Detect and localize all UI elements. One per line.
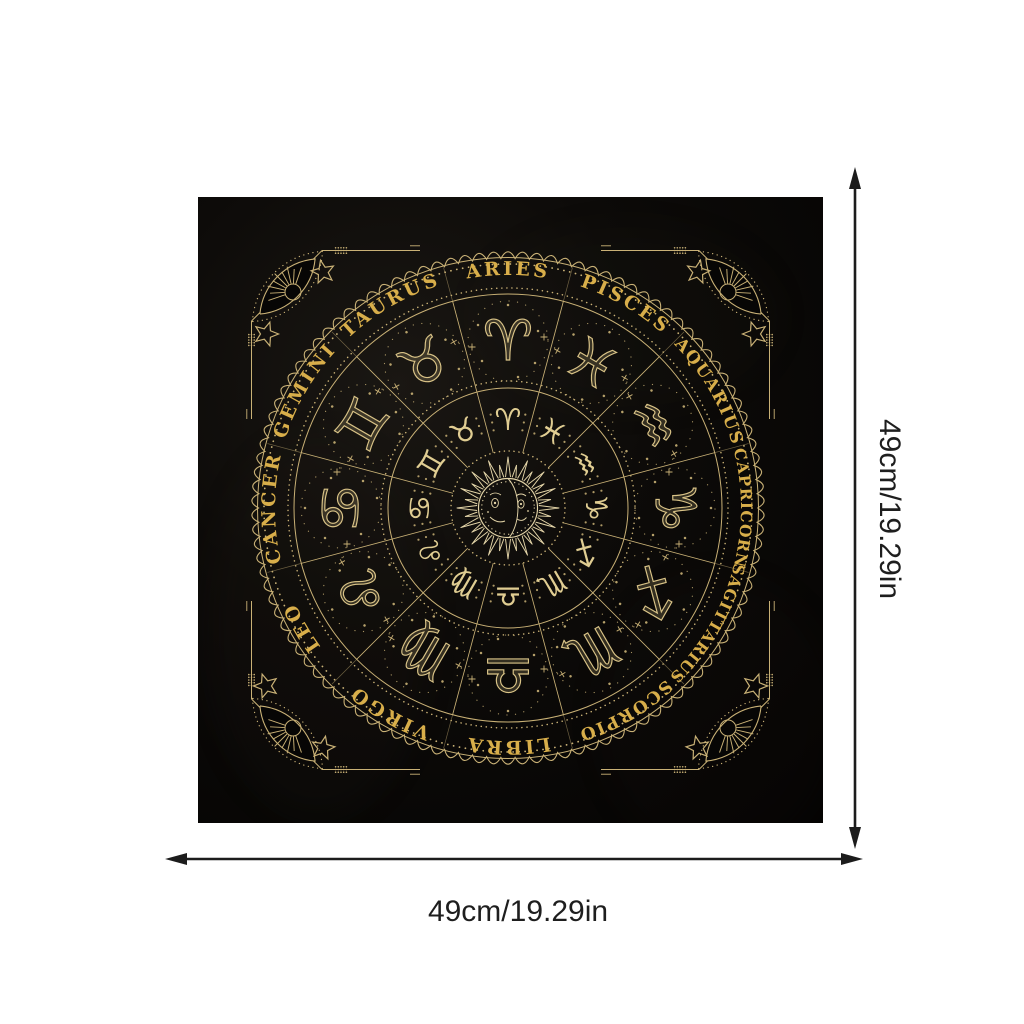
width-dimension-label: 49cm/19.29in [368,892,668,932]
svg-text:♋: ♋ [309,483,374,533]
zodiac-altar-cloth: ARIES♈♈PISCES♓♓AQUARIUS♒♒CAPRICORN♑♑SAGI… [198,197,823,823]
zodiac-glyph-capricorn: ♑ [578,495,613,522]
product-image-canvas: ARIES♈♈PISCES♓♓AQUARIUS♒♒CAPRICORN♑♑SAGI… [0,0,1024,1024]
height-dimension-label: 49cm/19.29in [869,369,909,649]
zodiac-glyph-libra: ♎ [495,578,522,613]
arrow-left-icon [165,853,187,865]
width-dimension-arrow [162,846,866,872]
svg-text:♑: ♑ [642,483,707,533]
zodiac-name-aries: ARIES [463,258,551,284]
zodiac-name-libra: LIBRA [464,732,552,758]
height-dimension-arrow [844,164,868,852]
arrow-up-icon [849,167,861,189]
svg-text:♈: ♈ [483,309,533,374]
zodiac-glyph-aries: ♈ [495,403,522,438]
svg-text:♎: ♎ [483,642,533,707]
arrow-right-icon [841,853,863,865]
zodiac-glyph-cancer: ♋ [403,495,438,522]
zodiac-wheel-art: ARIES♈♈PISCES♓♓AQUARIUS♒♒CAPRICORN♑♑SAGI… [198,197,823,823]
